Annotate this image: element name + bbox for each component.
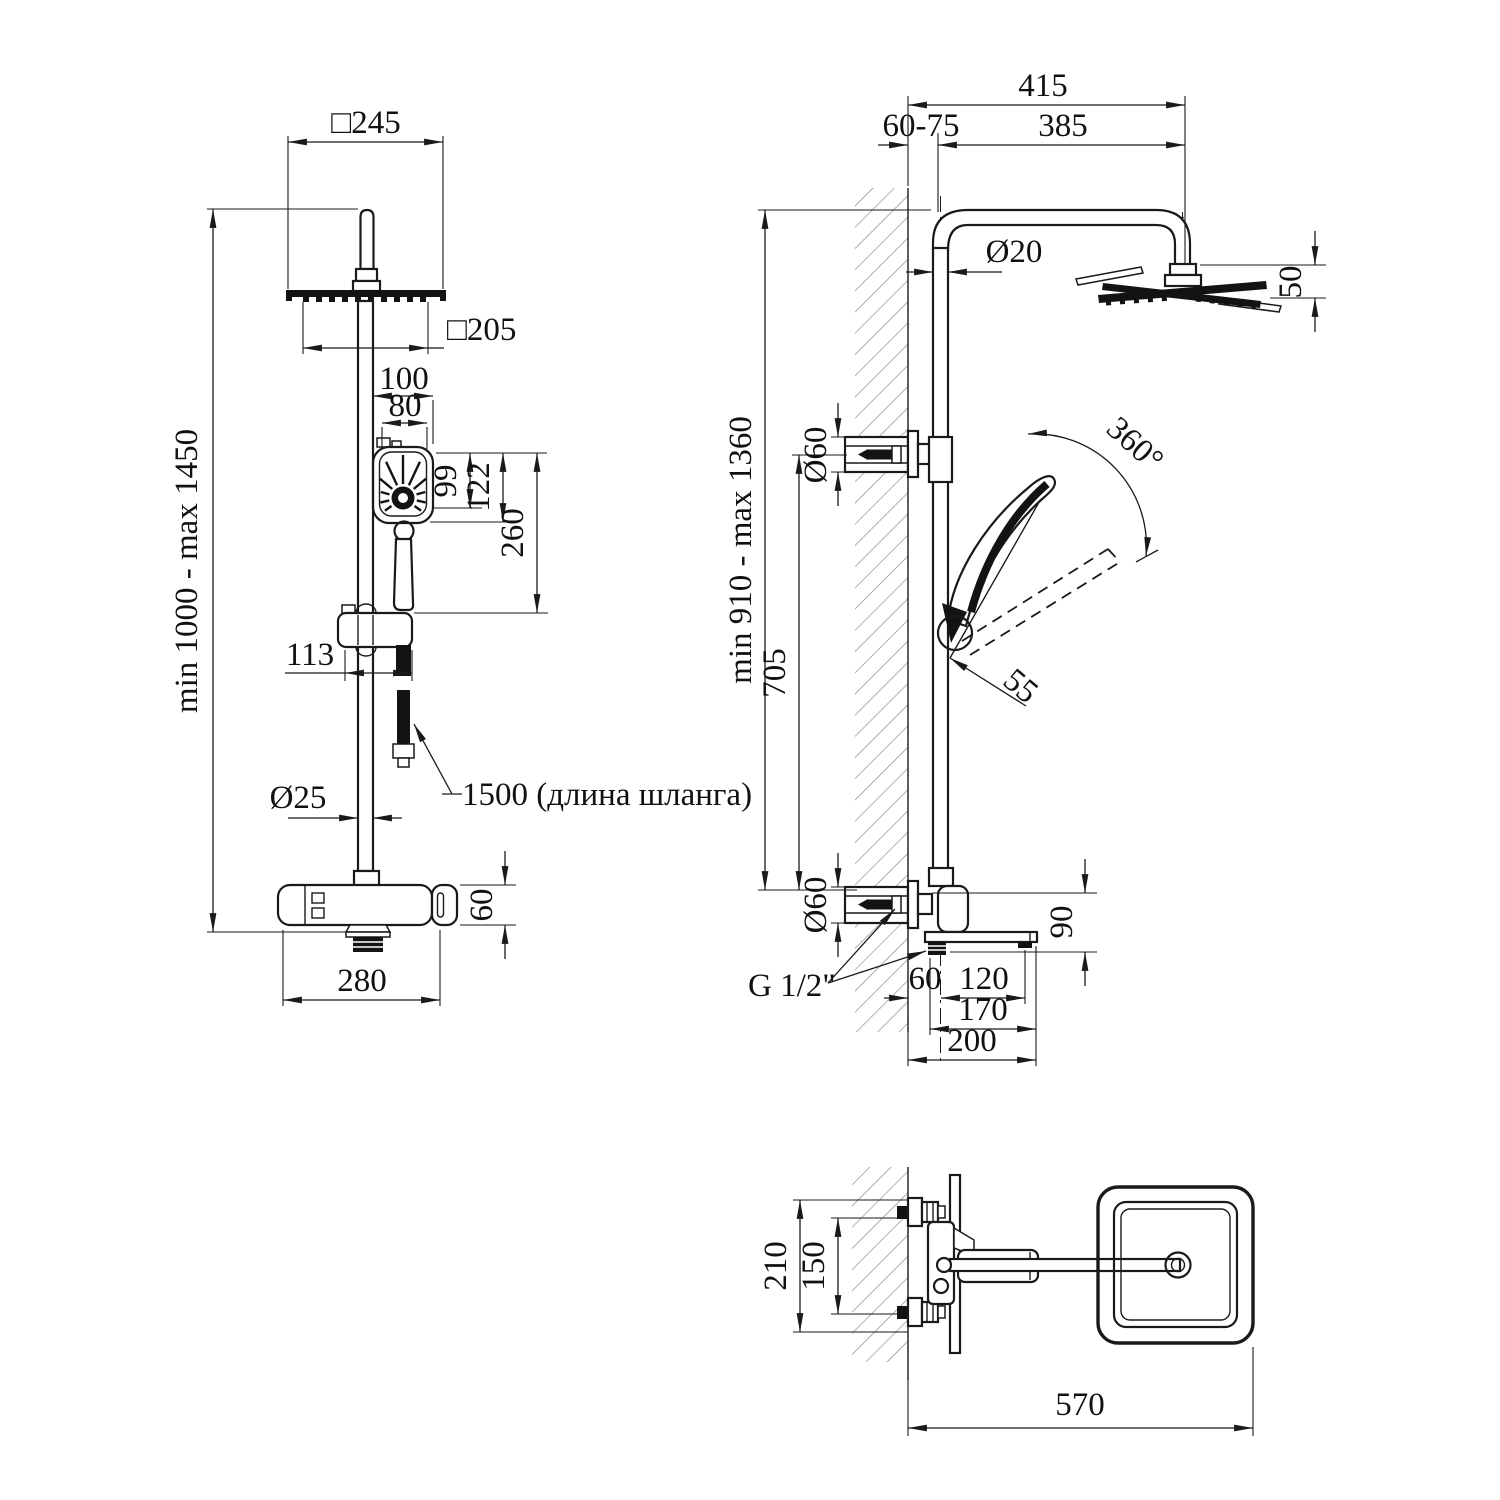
mixer-outlet-dome [346, 925, 390, 932]
dim-arm-length: 385 [938, 108, 1185, 145]
dim-bracket-diameter-bottom: Ø60 [798, 853, 850, 957]
hose-length-label: 1500 (длина шланга) [462, 777, 752, 813]
front-riser-pipe [361, 210, 374, 269]
spray-height-label: 99 [428, 465, 464, 498]
side-mixer [925, 868, 1037, 955]
face-square-label: □205 [447, 312, 516, 348]
top-view: 210 150 570 [758, 1167, 1253, 1436]
front-pole-sleeve [354, 871, 379, 886]
connection-spacing-label: 150 [796, 1241, 832, 1291]
head-height-label: 122 [461, 462, 497, 512]
top-wall-hatch [852, 1167, 908, 1362]
side-hand-shower [938, 476, 1120, 658]
dim-total-depth: 570 [908, 1347, 1253, 1436]
pole-diameter-label: Ø25 [270, 780, 327, 816]
side-spout-shelf [925, 932, 1037, 942]
arm-reach-label: 415 [1018, 68, 1068, 104]
front-hose-upper [396, 645, 411, 676]
arm-length-label: 385 [1038, 108, 1088, 144]
side-view: 360° 55 [723, 68, 1326, 1066]
side-bottom-bracket [845, 881, 932, 928]
bracket-diameter-bottom-label: Ø60 [798, 877, 834, 934]
head-thickness-label: 50 [1273, 266, 1309, 299]
front-view: min 1000 - max 1450 □245 □205 100 [169, 105, 752, 1006]
hand-shower-pivot [395, 522, 414, 541]
technical-drawing-page: min 1000 - max 1450 □245 □205 100 [0, 0, 1500, 1500]
bracket-diameter-top-label: Ø60 [798, 427, 834, 484]
mixer-outlet-thread [353, 937, 383, 952]
front-mixer-spout-cap [432, 885, 457, 925]
overall-square-label: □245 [331, 105, 400, 141]
dim-arm-diameter: Ø20 [906, 234, 1042, 272]
front-mixer-body [278, 885, 432, 925]
dim-front-height-range: min 1000 - max 1450 [169, 209, 358, 932]
front-mixer [278, 885, 457, 952]
front-height-range-label: min 1000 - max 1450 [169, 429, 205, 713]
shower-technical-drawing: min 1000 - max 1450 □245 □205 100 [0, 0, 1500, 1500]
holder-offset-label: 55 [996, 662, 1044, 711]
total-reach-label: 200 [947, 1023, 997, 1059]
swivel-label: 360° [1099, 410, 1170, 479]
dim-mixer-height: 60 [460, 851, 516, 959]
arm-diameter-label: Ø20 [986, 234, 1043, 270]
dim-bracket-spacing: 705 [757, 455, 847, 890]
dim-holder-offset: 55 [950, 658, 1045, 711]
mixer-height-label: 60 [464, 889, 500, 922]
front-pole [358, 301, 373, 871]
front-hose-connector [393, 744, 414, 758]
front-overhead-plate [286, 290, 446, 297]
wall-to-pole-label: 60 [909, 961, 942, 997]
thread-size-label: G 1/2" [748, 968, 836, 1004]
top-arm [950, 1259, 1180, 1271]
side-pole [933, 248, 948, 872]
hand-shower-handle [394, 539, 413, 610]
hand-assembly-height-label: 260 [495, 508, 531, 558]
side-hand-shower-body [948, 476, 1055, 626]
pole-sleeve-bottom [929, 868, 953, 886]
wall-offset-label: 60-75 [883, 108, 960, 144]
mixer-width-label: 280 [337, 963, 387, 999]
front-head-flange [353, 281, 380, 291]
body-depth-label: 210 [758, 1241, 794, 1291]
slider-offset-label: 113 [286, 637, 334, 673]
dim-face-square: □205 [303, 302, 516, 354]
dim-pole-diameter: Ø25 [270, 780, 402, 818]
hand-face-width-label: 80 [389, 388, 422, 424]
dim-hand-assembly-height: 260 [495, 453, 537, 613]
side-mixer-outlet [928, 942, 946, 955]
total-depth-label: 570 [1055, 1387, 1105, 1423]
side-height-range-label: min 910 - max 1360 [723, 416, 759, 684]
front-hand-shower [373, 438, 433, 610]
spout-height-label: 90 [1044, 906, 1080, 939]
front-hose-lower [397, 690, 410, 744]
pole-sleeve-top [929, 437, 952, 482]
side-drain-tick [1018, 942, 1032, 948]
side-shower-arm [933, 210, 1190, 266]
front-head-nut [356, 269, 377, 281]
bracket-spacing-label: 705 [757, 648, 793, 698]
hose-length-callout: 1500 (длина шланга) [414, 724, 752, 813]
